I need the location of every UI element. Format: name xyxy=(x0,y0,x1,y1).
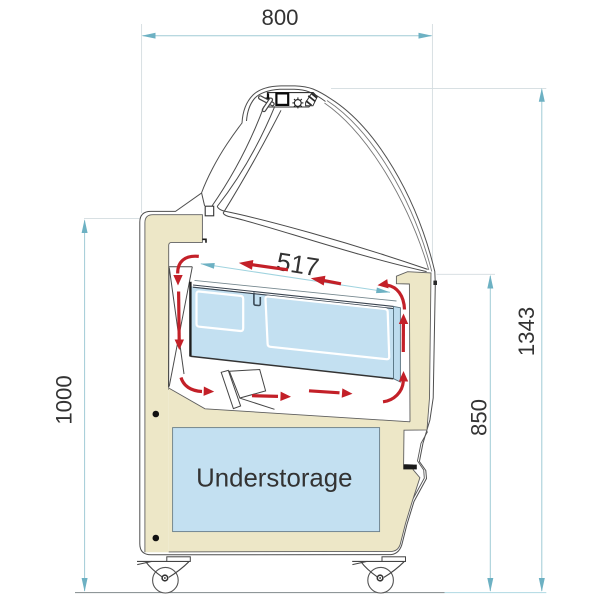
svg-text:850: 850 xyxy=(467,399,492,436)
svg-text:1000: 1000 xyxy=(52,375,77,424)
svg-text:800: 800 xyxy=(261,5,298,30)
svg-text:Understorage: Understorage xyxy=(196,465,352,493)
svg-text:1343: 1343 xyxy=(514,307,539,356)
